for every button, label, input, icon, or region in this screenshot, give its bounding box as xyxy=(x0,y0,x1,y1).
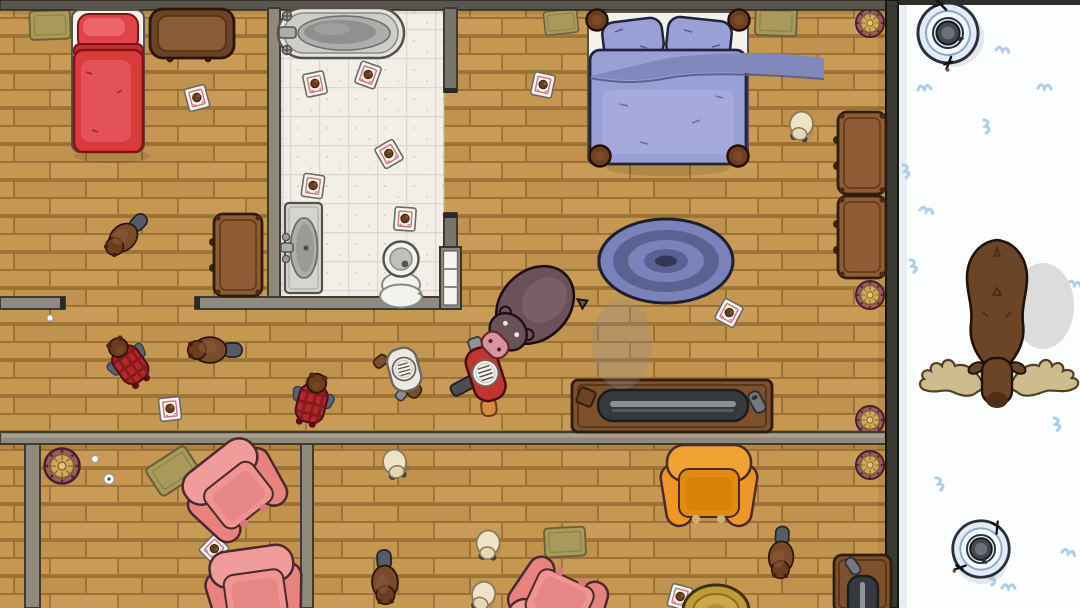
side-table-with-tray xyxy=(834,555,891,608)
bench xyxy=(209,214,262,296)
wall-bottom-middle-vertical xyxy=(301,444,313,608)
beaver-card[interactable] xyxy=(394,207,417,231)
bench xyxy=(833,196,886,278)
dartboard-target[interactable] xyxy=(856,406,884,434)
dartboard-target[interactable] xyxy=(856,451,884,479)
snow-wall-shade xyxy=(898,0,907,608)
bathtub xyxy=(278,8,404,58)
long-table-with-tray xyxy=(572,380,772,432)
beaver-card[interactable] xyxy=(301,173,325,199)
brown-pet-bed xyxy=(150,9,234,62)
wall-highlight xyxy=(2,434,884,438)
wall-endcap xyxy=(444,88,457,93)
wall-snow-boundary xyxy=(886,0,898,608)
orange-armchair xyxy=(659,445,759,528)
olive-mat xyxy=(29,10,70,40)
beaver-card[interactable] xyxy=(530,72,555,99)
wall-bottom-left-vertical xyxy=(25,444,40,608)
sink xyxy=(281,203,322,293)
marble[interactable] xyxy=(47,315,53,321)
wall-bathroom-right-upper xyxy=(444,8,457,92)
dartboard-target[interactable] xyxy=(856,281,884,309)
beaver-card[interactable] xyxy=(158,396,181,421)
blue-oval-rug xyxy=(599,219,733,303)
olive-mat xyxy=(543,9,579,36)
beaver-card[interactable] xyxy=(302,71,327,98)
wall-endcap xyxy=(444,213,457,218)
wall-endcap xyxy=(195,297,200,309)
wall-bathroom-left xyxy=(268,8,280,309)
red-single-bed xyxy=(72,10,150,163)
wall-left-stub xyxy=(0,297,65,309)
dartboard-target[interactable] xyxy=(45,449,80,484)
wall-top-snow-edge xyxy=(898,0,1080,5)
shadow xyxy=(592,299,652,389)
game-viewport xyxy=(0,0,1080,608)
olive-mat xyxy=(544,527,586,558)
bench xyxy=(833,112,886,194)
wall-main-horizontal xyxy=(0,432,886,444)
marble[interactable] xyxy=(91,455,98,462)
wall-endcap xyxy=(60,297,65,309)
bathroom-window xyxy=(440,247,461,309)
dartboard-target[interactable] xyxy=(856,9,884,37)
